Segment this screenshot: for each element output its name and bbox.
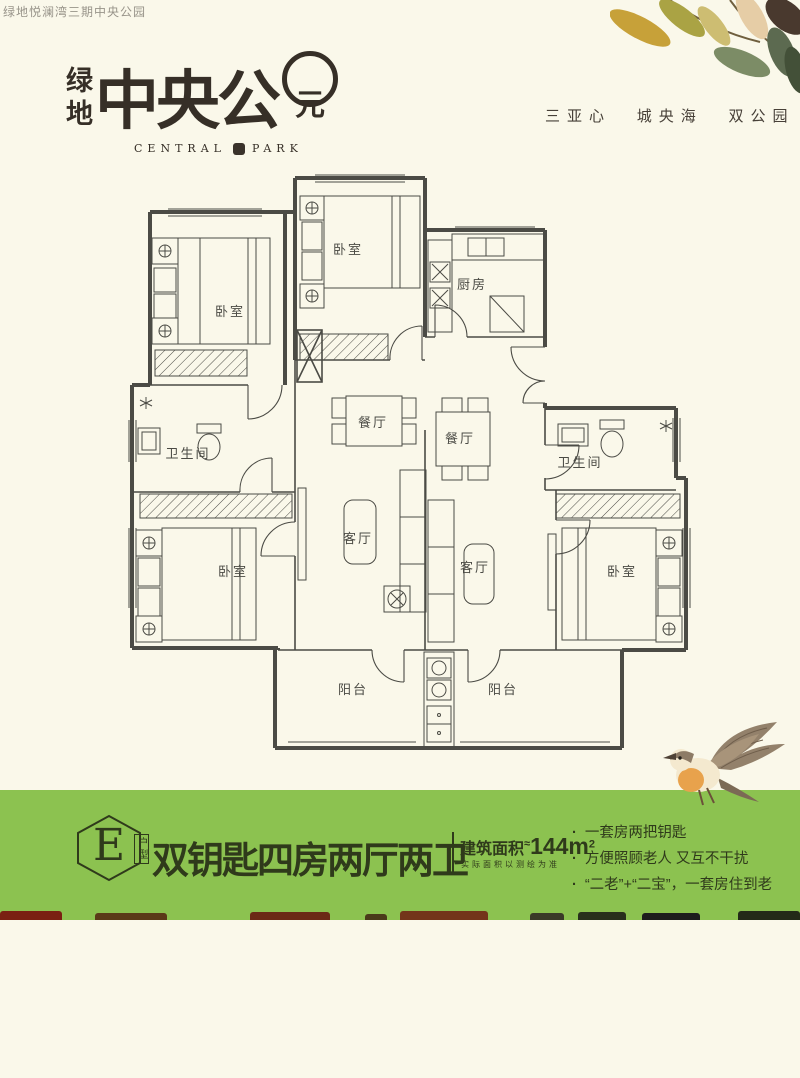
windows (129, 175, 690, 742)
area-disclaimer: 实际面积以测绘为准 (461, 859, 560, 870)
project-name-text: 绿地悦澜湾三期中央公园 (3, 3, 146, 20)
room-label-bath-right: 卫生间 (557, 455, 602, 470)
selling-point: 一套房两把钥匙 (572, 820, 772, 846)
brand-vertical-text: 绿地 (57, 66, 96, 132)
selling-point: “二老”+“二宝”，一套房住到老 (572, 872, 772, 898)
brand-logo-main-text: 中央公 (95, 64, 278, 139)
unit-type-badge: E (76, 814, 142, 882)
brand-logo-subtitle: CENTRAL PARK (134, 142, 303, 155)
brand-logo: 中央公元 (95, 50, 338, 142)
selling-point: 方便照顾老人 又互不干扰 (572, 846, 772, 872)
logo-sub-right-text: PARK (252, 142, 303, 155)
banner-divider (452, 832, 454, 872)
unit-type-letter: E (76, 820, 142, 871)
room-label-dining-right: 餐厅 (445, 431, 475, 446)
room-label-bedroom-tl: 卧室 (215, 304, 245, 319)
room-label-kitchen: 厨房 (457, 277, 487, 292)
banner-title: 双钥匙四房两厅两卫 (152, 830, 467, 884)
room-label-living-right: 客厅 (460, 560, 490, 575)
unit-type-suffix: 户型 (134, 834, 149, 864)
room-label-living-left: 客厅 (343, 531, 373, 546)
cropped-photo-strip (0, 908, 800, 920)
logo-sub-left-text: CENTRAL (134, 142, 226, 155)
leaves-decoration (610, 0, 800, 110)
interior-walls (132, 330, 676, 650)
room-label-bedroom-br: 卧室 (607, 564, 637, 579)
room-label-balcony-right: 阳台 (488, 682, 518, 697)
bird-illustration (663, 720, 798, 810)
room-label-balcony-left: 阳台 (338, 682, 368, 697)
exterior-walls (132, 178, 686, 748)
furniture (136, 196, 682, 748)
selling-points-list: 一套房两把钥匙 方便照顾老人 又互不干扰 “二老”+“二宝”，一套房住到老 (572, 820, 772, 898)
room-label-bath-left: 卫生间 (165, 446, 210, 461)
room-label-bedroom-bl: 卧室 (218, 564, 248, 579)
room-label-dining-left: 餐厅 (358, 415, 388, 430)
poster-page: 绿地悦澜湾三期中央公园 绿地 中央公元 CENTRAL PARK 三亚心 城央海… (0, 0, 800, 1078)
logo-seal-icon (233, 143, 245, 155)
floorplan-drawing: 卧室 卧室 厨房 卫生间 餐厅 餐厅 卫生间 客厅 客厅 卧室 卧室 阳台 阳台 (120, 165, 700, 765)
built-area-label: 建筑面积 (460, 841, 524, 858)
brand-logo-circle-seal: 元 (282, 51, 338, 107)
room-label-bedroom-tm: 卧室 (333, 242, 363, 257)
